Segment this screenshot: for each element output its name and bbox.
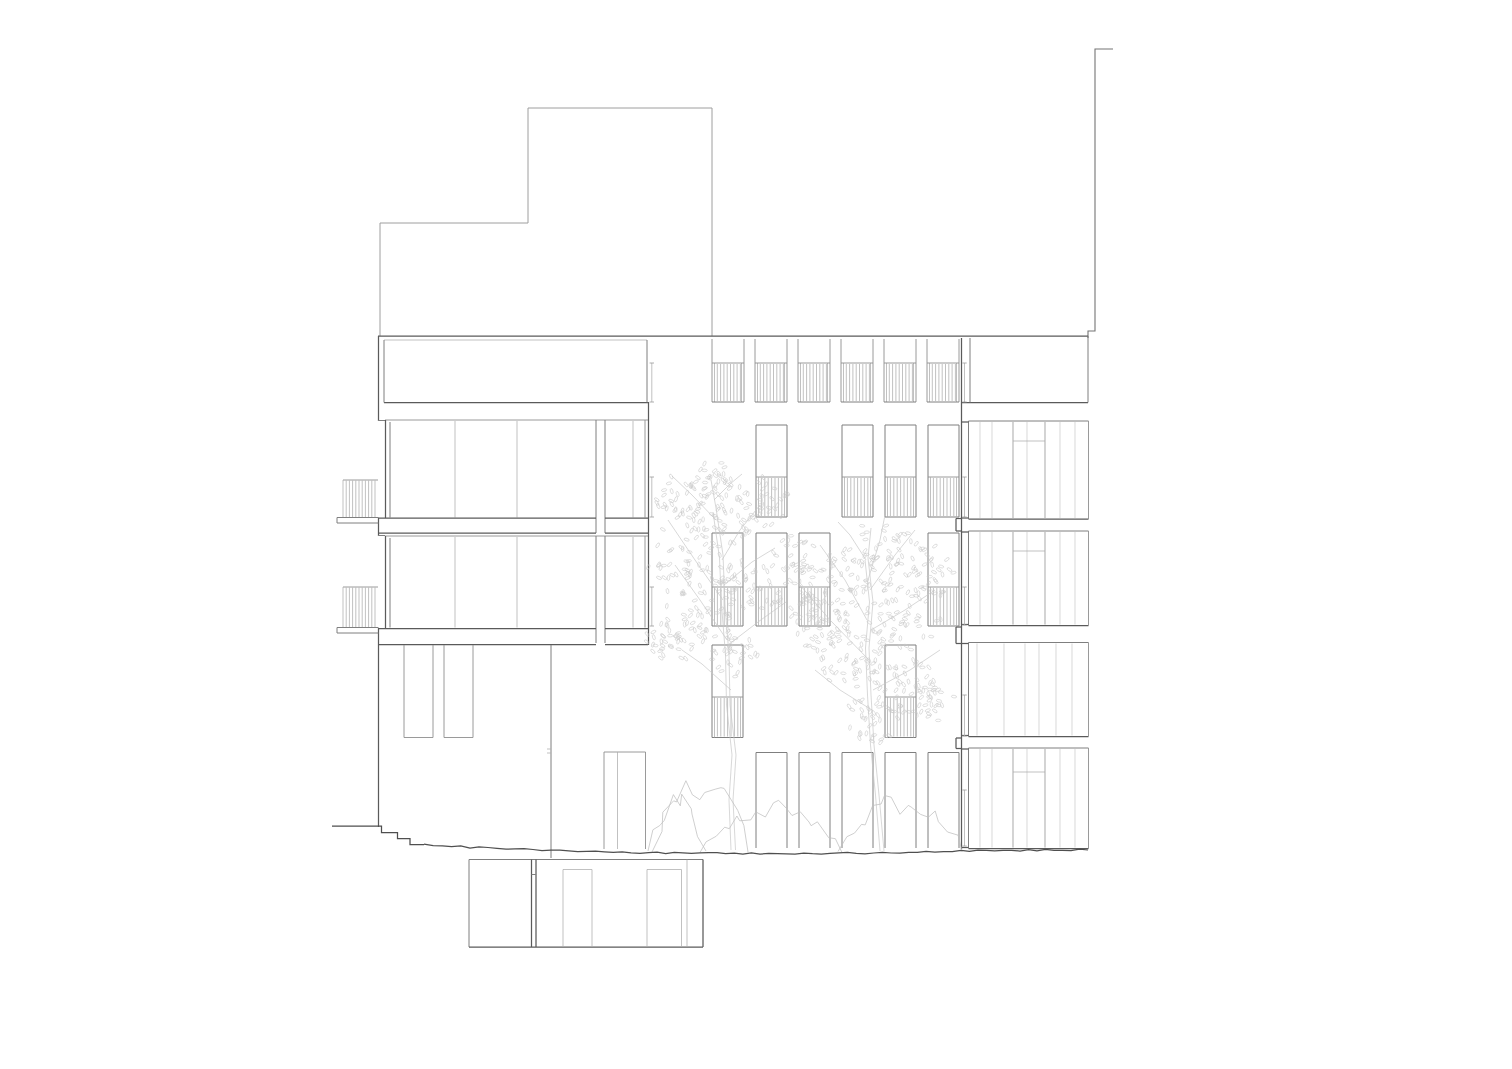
courtyard-tree <box>644 461 791 850</box>
left-balconies <box>337 480 379 633</box>
elevation-sheet <box>0 0 1512 1069</box>
context-roof-outline <box>380 108 712 336</box>
left-wing-facade <box>378 336 649 827</box>
left-setback-lower <box>404 645 646 858</box>
courtyard-shrubs <box>648 781 962 853</box>
basement-volume <box>469 860 703 948</box>
elevation-drawing <box>0 0 1512 1069</box>
attic-terrace-bays <box>712 339 959 402</box>
neighbor-building-outline <box>1088 49 1113 338</box>
right-balcony-panels <box>962 421 1089 849</box>
attic-left-opening <box>384 340 649 403</box>
attic-right-opening <box>962 336 1089 403</box>
